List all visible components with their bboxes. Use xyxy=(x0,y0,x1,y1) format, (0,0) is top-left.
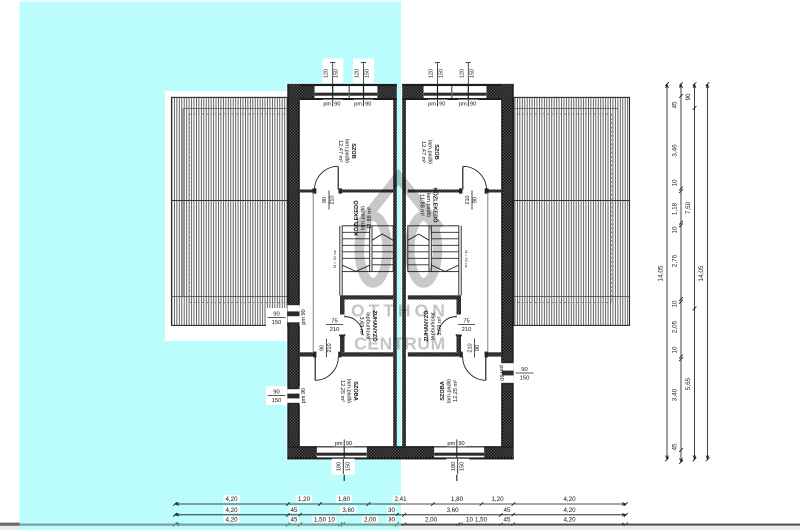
svg-text:210: 210 xyxy=(330,327,340,333)
svg-text:pm: pm xyxy=(447,441,455,447)
svg-text:10: 10 xyxy=(672,300,679,308)
svg-text:45: 45 xyxy=(291,507,298,514)
svg-text:30: 30 xyxy=(388,507,395,514)
svg-text:1,80: 1,80 xyxy=(338,496,351,503)
svg-text:12,47 m²: 12,47 m² xyxy=(337,140,343,162)
svg-text:4,20: 4,20 xyxy=(563,516,576,523)
svg-text:210: 210 xyxy=(329,195,335,204)
svg-text:150: 150 xyxy=(345,462,351,471)
svg-text:210: 210 xyxy=(327,343,333,352)
svg-text:90: 90 xyxy=(439,101,445,107)
svg-text:45: 45 xyxy=(504,516,511,523)
svg-text:90: 90 xyxy=(521,367,527,373)
svg-text:150: 150 xyxy=(460,462,466,471)
svg-text:10: 10 xyxy=(466,516,473,523)
svg-text:4,20: 4,20 xyxy=(225,496,238,503)
svg-text:90: 90 xyxy=(470,101,476,107)
svg-text:75: 75 xyxy=(331,319,337,325)
svg-text:2,76: 2,76 xyxy=(672,254,679,267)
svg-text:45: 45 xyxy=(672,443,679,451)
svg-text:pm: pm xyxy=(335,441,343,447)
svg-text:1,50: 1,50 xyxy=(314,516,327,523)
svg-text:pm: pm xyxy=(323,101,331,107)
svg-text:150: 150 xyxy=(520,375,530,381)
svg-text:pm 90: pm 90 xyxy=(301,388,307,404)
svg-text:SZOB: SZOB xyxy=(433,144,439,160)
svg-text:10: 10 xyxy=(672,346,679,354)
svg-text:M = 93 cm: M = 93 cm xyxy=(333,250,337,268)
svg-text:lam.padló: lam.padló xyxy=(344,139,350,163)
svg-text:90: 90 xyxy=(475,345,481,351)
svg-text:OTTHON: OTTHON xyxy=(351,301,449,321)
svg-text:90: 90 xyxy=(346,441,352,447)
svg-text:14,05: 14,05 xyxy=(658,265,665,281)
svg-text:150: 150 xyxy=(365,69,371,78)
svg-text:180: 180 xyxy=(451,462,457,471)
svg-text:120: 120 xyxy=(355,69,361,78)
svg-text:1,80: 1,80 xyxy=(451,496,464,503)
svg-text:2,00: 2,00 xyxy=(364,516,377,523)
svg-text:3,40: 3,40 xyxy=(672,388,679,401)
svg-text:150: 150 xyxy=(334,69,340,78)
svg-text:10: 10 xyxy=(672,179,679,187)
svg-text:pm 90: pm 90 xyxy=(498,365,504,381)
svg-text:75: 75 xyxy=(463,319,469,325)
svg-text:90: 90 xyxy=(458,441,464,447)
svg-text:3,60: 3,60 xyxy=(447,507,460,514)
svg-text:4,20: 4,20 xyxy=(563,496,576,503)
svg-text:1,20: 1,20 xyxy=(491,496,504,503)
svg-text:120: 120 xyxy=(429,69,435,78)
svg-text:90: 90 xyxy=(320,345,326,351)
svg-text:M = 93 cm: M = 93 cm xyxy=(464,250,468,268)
svg-text:10: 10 xyxy=(328,516,335,523)
svg-text:5,65: 5,65 xyxy=(685,377,692,390)
svg-text:120: 120 xyxy=(459,69,465,78)
svg-text:12,47 m²: 12,47 m² xyxy=(420,141,426,163)
svg-text:90: 90 xyxy=(322,197,328,203)
svg-text:SZOBA: SZOBA xyxy=(440,381,446,401)
svg-text:12,25 m²: 12,25 m² xyxy=(339,380,345,402)
svg-text:210: 210 xyxy=(468,343,474,352)
svg-text:1,18: 1,18 xyxy=(672,202,679,215)
svg-text:180: 180 xyxy=(337,462,343,471)
svg-text:150: 150 xyxy=(272,320,282,326)
svg-text:CENTRUM: CENTRUM xyxy=(354,334,446,354)
svg-text:SZOBA: SZOBA xyxy=(352,381,358,401)
svg-text:150: 150 xyxy=(439,69,445,78)
svg-text:210: 210 xyxy=(462,327,472,333)
svg-text:90: 90 xyxy=(273,390,279,396)
svg-text:210: 210 xyxy=(465,195,471,204)
svg-text:150: 150 xyxy=(272,398,282,404)
svg-text:lam.padló: lam.padló xyxy=(346,379,352,403)
svg-text:SZOB: SZOB xyxy=(350,143,356,159)
svg-text:150: 150 xyxy=(469,69,475,78)
svg-text:lam.padló: lam.padló xyxy=(427,140,433,164)
svg-text:pm: pm xyxy=(354,101,362,107)
svg-text:lam.padló: lam.padló xyxy=(447,379,453,403)
svg-text:120: 120 xyxy=(324,69,330,78)
svg-text:45: 45 xyxy=(504,507,511,514)
svg-text:4,20: 4,20 xyxy=(563,507,576,514)
svg-text:pm: pm xyxy=(459,101,467,107)
svg-text:1,50: 1,50 xyxy=(475,516,488,523)
svg-text:45: 45 xyxy=(672,101,679,109)
svg-text:4,20: 4,20 xyxy=(225,507,238,514)
svg-text:90: 90 xyxy=(685,93,692,101)
svg-text:90: 90 xyxy=(334,101,340,107)
svg-text:pm: pm xyxy=(428,101,436,107)
svg-text:pm 90: pm 90 xyxy=(301,309,307,325)
svg-text:10: 10 xyxy=(672,226,679,234)
svg-text:7,50: 7,50 xyxy=(685,201,692,214)
svg-text:3,46: 3,46 xyxy=(672,144,679,157)
svg-text:2,41: 2,41 xyxy=(394,496,407,503)
svg-text:45: 45 xyxy=(291,516,298,523)
svg-text:90: 90 xyxy=(472,197,478,203)
svg-text:2,00: 2,00 xyxy=(425,516,438,523)
svg-text:90: 90 xyxy=(273,312,279,318)
svg-text:4,20: 4,20 xyxy=(225,516,238,523)
svg-text:90: 90 xyxy=(365,101,371,107)
svg-text:30: 30 xyxy=(388,516,395,523)
svg-text:12,25 m²: 12,25 m² xyxy=(453,380,459,402)
svg-text:3,60: 3,60 xyxy=(342,507,355,514)
svg-text:1,20: 1,20 xyxy=(298,496,311,503)
svg-text:2,05: 2,05 xyxy=(672,320,679,333)
svg-text:14,05: 14,05 xyxy=(698,265,705,281)
